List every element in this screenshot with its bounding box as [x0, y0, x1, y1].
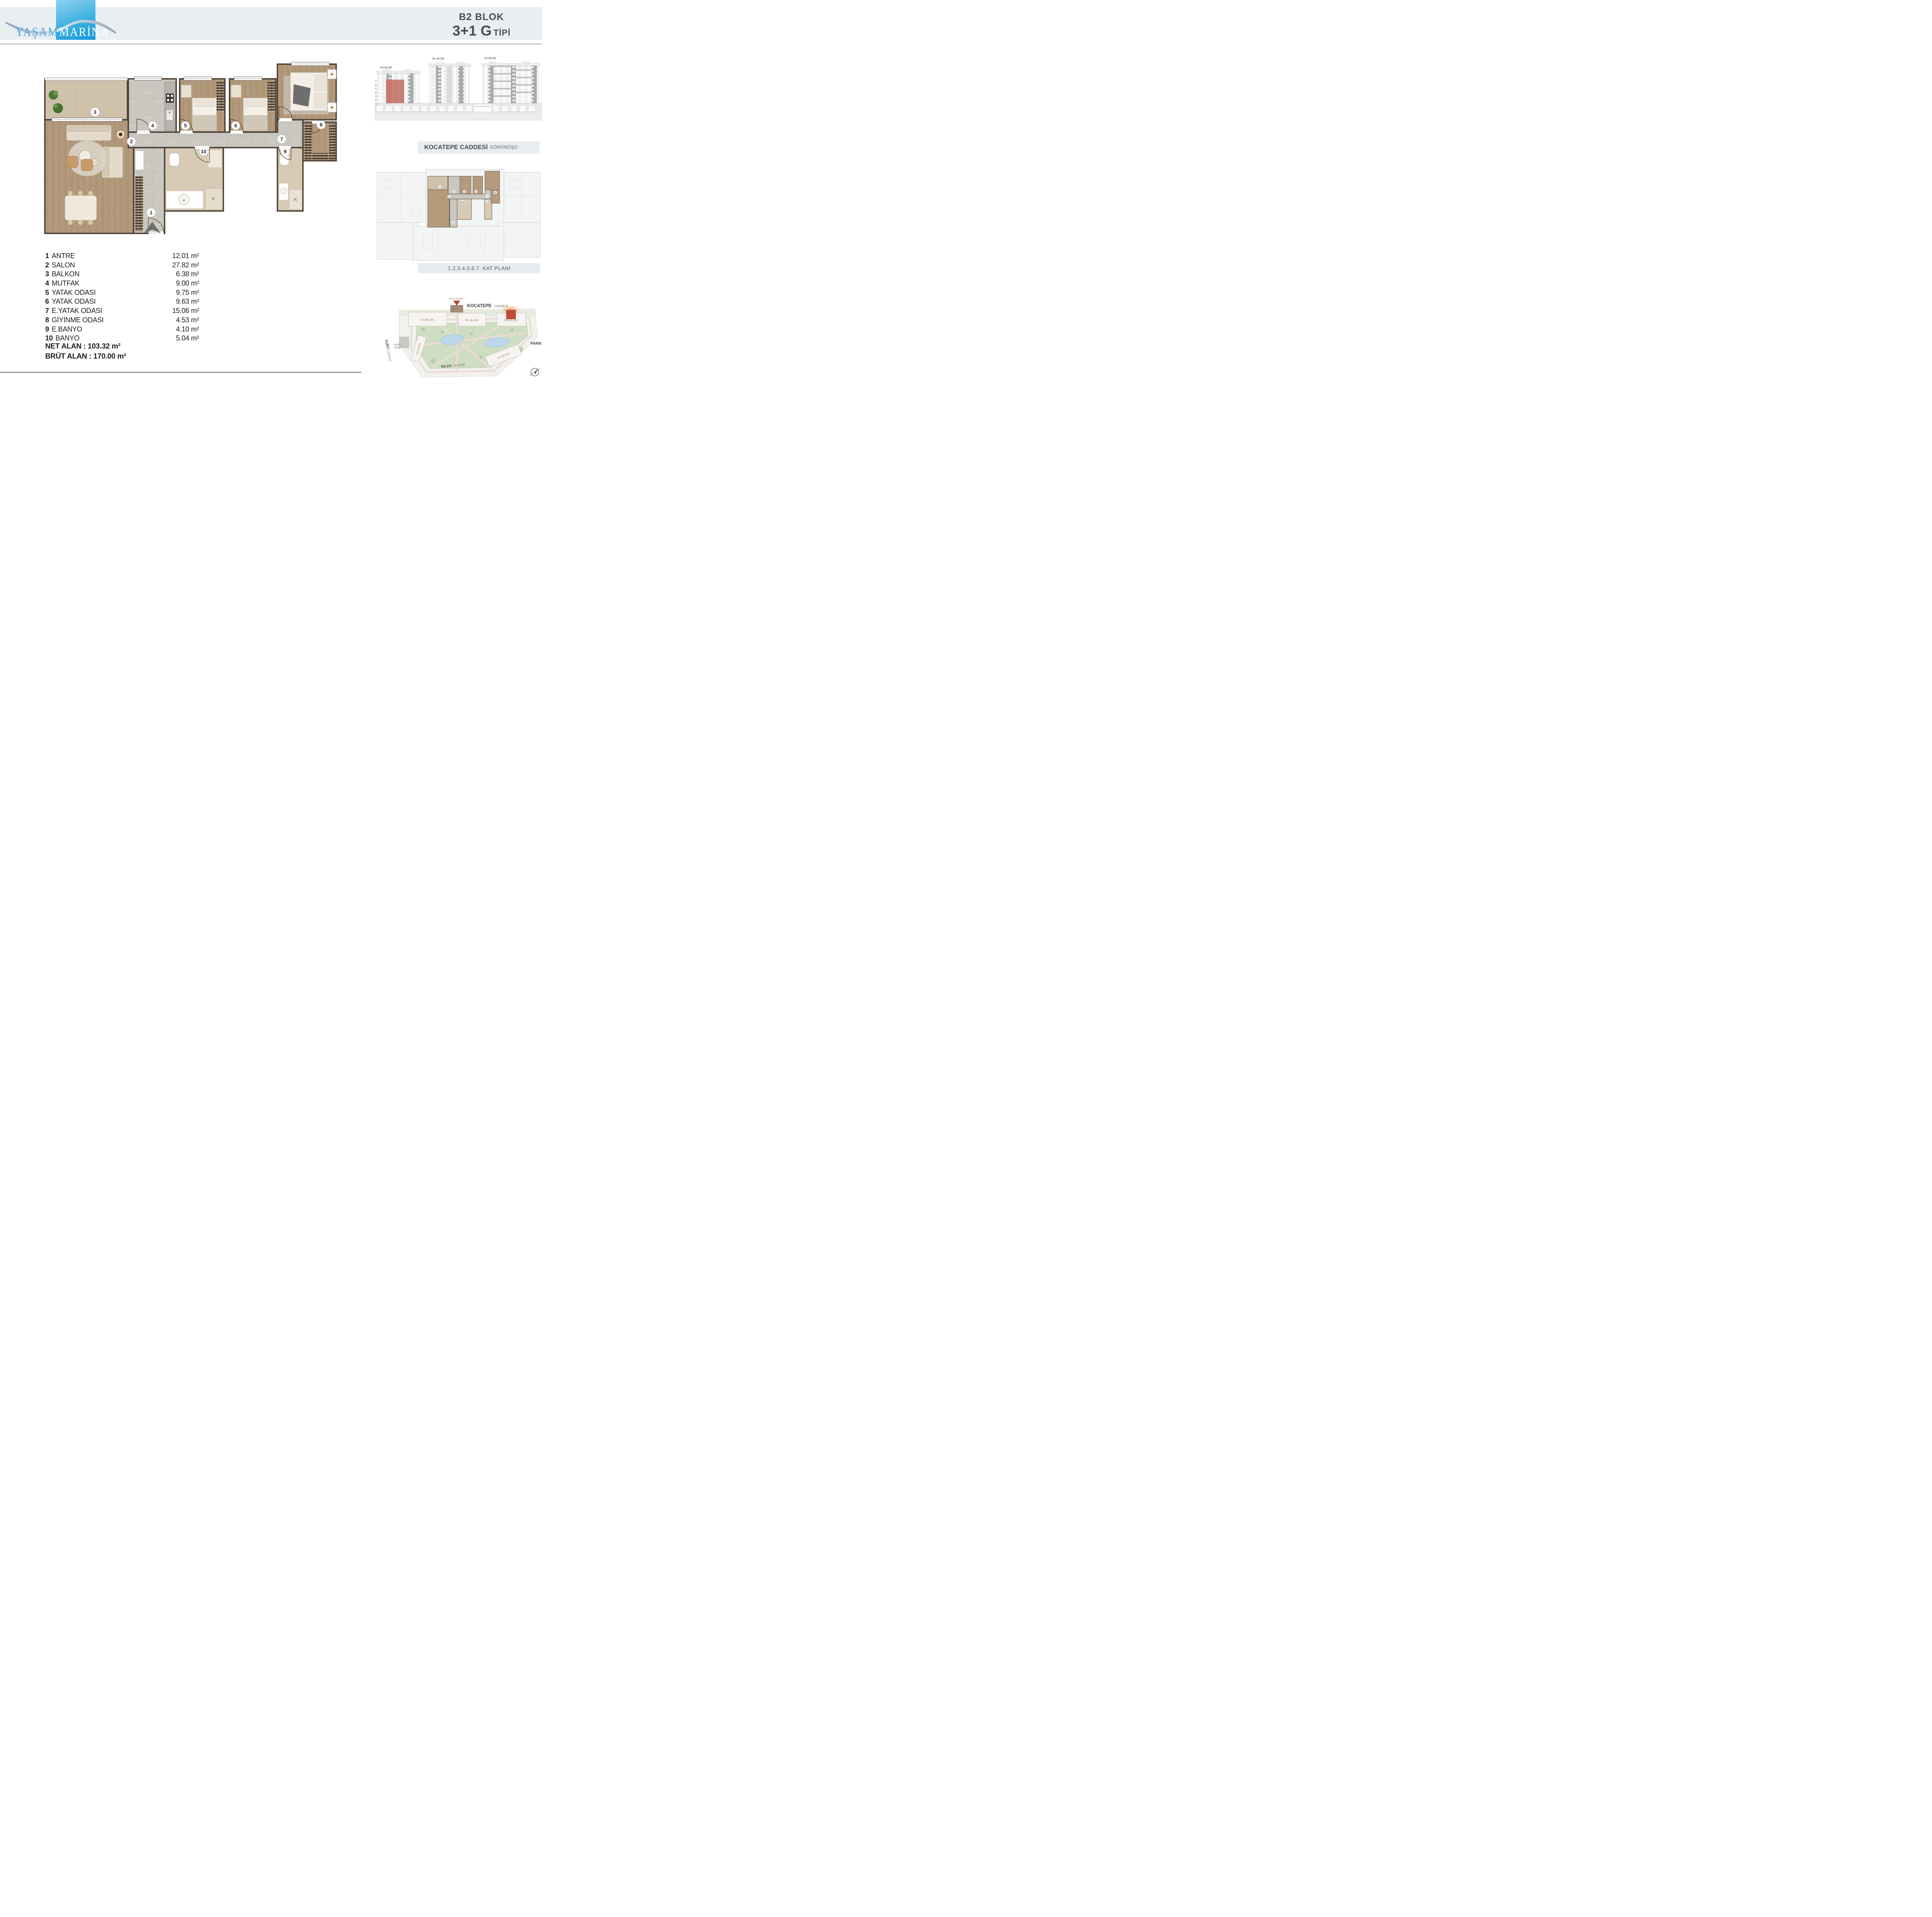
svg-text:YURT: YURT [384, 339, 390, 350]
logo-word-yasam: YAŞAM [15, 26, 59, 39]
logo-word-marina: MARİNA [59, 26, 109, 39]
elevation-label-b1: B1 BLOK [432, 57, 444, 60]
unit-headline: B2 BLOK 3+1 G TİPİ [447, 12, 515, 42]
svg-text:SATIŞ: SATIŞ [394, 344, 401, 346]
entrance-sign: YAŞAM MARİNA [474, 105, 491, 107]
footer-divider [0, 372, 361, 373]
room-row: 4MUTFAK9.00 m² [45, 279, 199, 289]
floor-numbers: 7 6 5 4 3 2 1 [375, 80, 377, 105]
svg-text:1: 1 [453, 222, 454, 224]
antre-cabinets [135, 151, 144, 231]
svg-text:8: 8 [495, 192, 496, 194]
main-floor-plan: 3 2 4 5 6 7 8 9 10 1 [42, 61, 348, 236]
header-divider [0, 44, 542, 44]
sales-office-label: SATIŞ OFİSİ [394, 344, 401, 349]
park-label: PARK [531, 341, 542, 346]
badge-2: 2 [130, 139, 133, 145]
room-row: 5YATAK ODASI9.75 m² [45, 289, 199, 298]
badge-9: 9 [284, 149, 286, 155]
elevation-ground [375, 112, 542, 121]
svg-text:6: 6 [476, 191, 477, 193]
badge-6: 6 [234, 123, 237, 129]
svg-text:4: 4 [454, 191, 455, 193]
svg-text:7: 7 [375, 80, 377, 83]
street-yurt: YURT CADDESİ [384, 339, 393, 362]
site-gate [451, 305, 463, 312]
gross-area: BRÜT ALAN : 170.00 m² [45, 352, 126, 362]
site-entrance-label: SİTE GİRİŞİ [449, 298, 464, 300]
net-area: NET ALAN : 103.32 m² [45, 342, 126, 352]
badge-7: 7 [280, 136, 283, 142]
room-row: 2SALON27.82 m² [45, 261, 199, 270]
room-row: 9E.BANYO4.10 m² [45, 325, 199, 335]
room-balkon [45, 79, 128, 120]
siteplan-panel: SİTE GİRİŞİ KOCATEPE CADDESİ A3 BLOK B1 … [375, 287, 542, 383]
svg-text:10: 10 [462, 201, 464, 203]
svg-text:3: 3 [375, 95, 377, 98]
room-row: 1ANTRE12.01 m² [45, 252, 199, 261]
site-label-a3: A3 BLOK [421, 319, 434, 321]
svg-text:OFİSİ: OFİSİ [394, 347, 400, 349]
badge-1: 1 [150, 210, 152, 216]
keyplan-highlighted-unit [428, 171, 500, 227]
kitchen-counter [165, 82, 175, 131]
svg-text:5: 5 [464, 191, 465, 193]
badge-10: 10 [201, 149, 206, 155]
unit-type: 3+1 G [452, 23, 492, 39]
elevation-label-a3: A3 BLOK [484, 56, 496, 60]
elevation-label-b2: B2 BLOK [380, 66, 392, 69]
room-row: 8GİYİNME ODASI4.53 m² [45, 316, 199, 325]
unit-type-line: 3+1 G TİPİ [447, 23, 515, 42]
entrance-arrow-icon [453, 301, 460, 306]
site-label-b2: B2 BLOK [505, 319, 518, 322]
brochure-page: YAŞAM MARİNA B2 BLOK 3+1 G TİPİ [0, 0, 542, 383]
street-kocatepe-light: CADDESİ [494, 304, 508, 308]
room-row: 7E.YATAK ODASI15.06 m² [45, 307, 199, 316]
room-row: 6YATAK ODASI9.63 m² [45, 298, 199, 307]
room-list: 1ANTRE12.01 m² 2SALON27.82 m² 3BALKON6.3… [45, 252, 199, 344]
elevation-b2 [376, 69, 421, 103]
compass-icon [530, 368, 540, 376]
site-label-b1: B1 BLOK [466, 319, 479, 322]
room-row: 3BALKON6.38 m² [45, 270, 199, 279]
svg-text:6: 6 [375, 84, 377, 87]
elevation-a3 [481, 61, 540, 103]
svg-text:4: 4 [375, 92, 377, 94]
elevation-b1 [429, 62, 471, 103]
site-highlighted-unit [506, 310, 516, 319]
svg-text:CADDESİ: CADDESİ [386, 349, 392, 362]
svg-text:7: 7 [487, 196, 488, 197]
elevation-panel: YAŞAM MARİNA [375, 54, 542, 140]
svg-text:2: 2 [449, 196, 450, 198]
badge-5: 5 [184, 123, 187, 129]
area-totals: NET ALAN : 103.32 m² BRÜT ALAN : 170.00 … [45, 342, 126, 362]
master-furniture [284, 70, 336, 114]
street-kocatepe-bold: KOCATEPE [467, 304, 492, 308]
badge-3: 3 [94, 109, 96, 115]
svg-text:1: 1 [375, 103, 377, 105]
unit-type-suffix: TİPİ [493, 28, 510, 37]
svg-text:3: 3 [440, 186, 441, 188]
keyplan-panel: 3 2 4 5 6 7 8 9 10 1 [376, 168, 541, 261]
svg-text:9: 9 [486, 201, 488, 203]
badge-8: 8 [320, 122, 322, 128]
elevation-caption: KOCATEPE CADDESİ GÖRÜNÜŞÜ [418, 141, 539, 154]
badge-4: 4 [151, 123, 154, 129]
svg-text:2: 2 [375, 99, 377, 102]
block-label: B2 BLOK [447, 12, 515, 22]
keyplan-caption: 1.2.3.4.5.6.7. KAT PLANI [418, 263, 540, 273]
svg-text:5: 5 [375, 88, 377, 90]
